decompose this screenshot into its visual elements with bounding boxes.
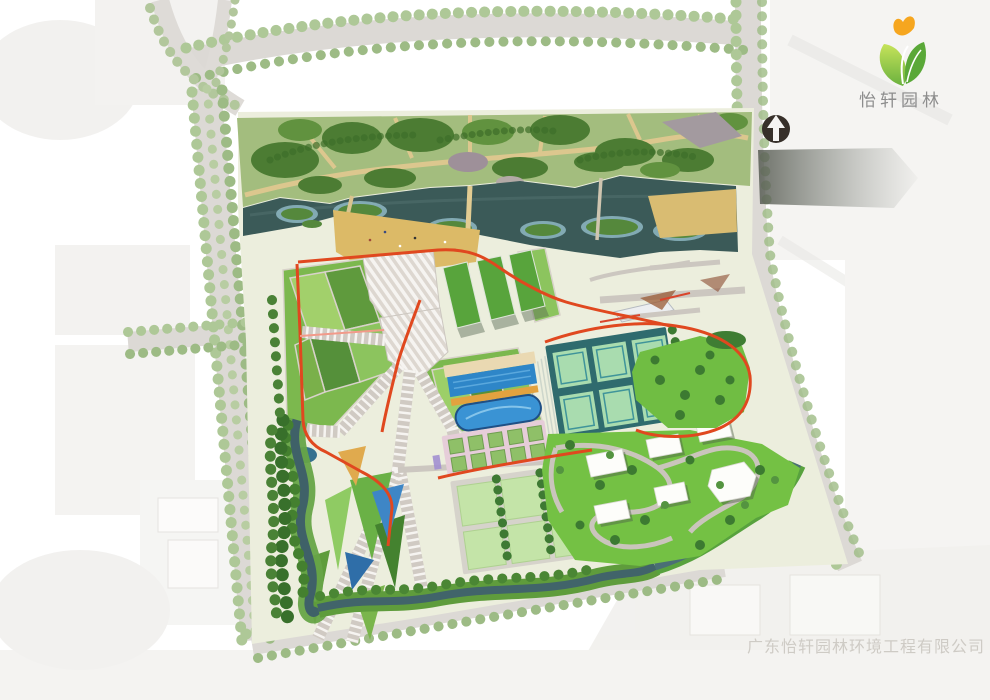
overpass-bridge: [758, 148, 918, 208]
logo-text: 怡轩园林: [859, 91, 943, 110]
masterplan-page: 怡轩园林 广东怡轩园林环境工程有限公司: [0, 0, 990, 700]
north-arrow-icon: [762, 115, 790, 143]
watermark-text: 广东怡轩园林环境工程有限公司: [747, 637, 985, 656]
masterplan-canvas: 怡轩园林 广东怡轩园林环境工程有限公司: [0, 0, 990, 700]
swimming-pool-complex: [443, 351, 545, 433]
